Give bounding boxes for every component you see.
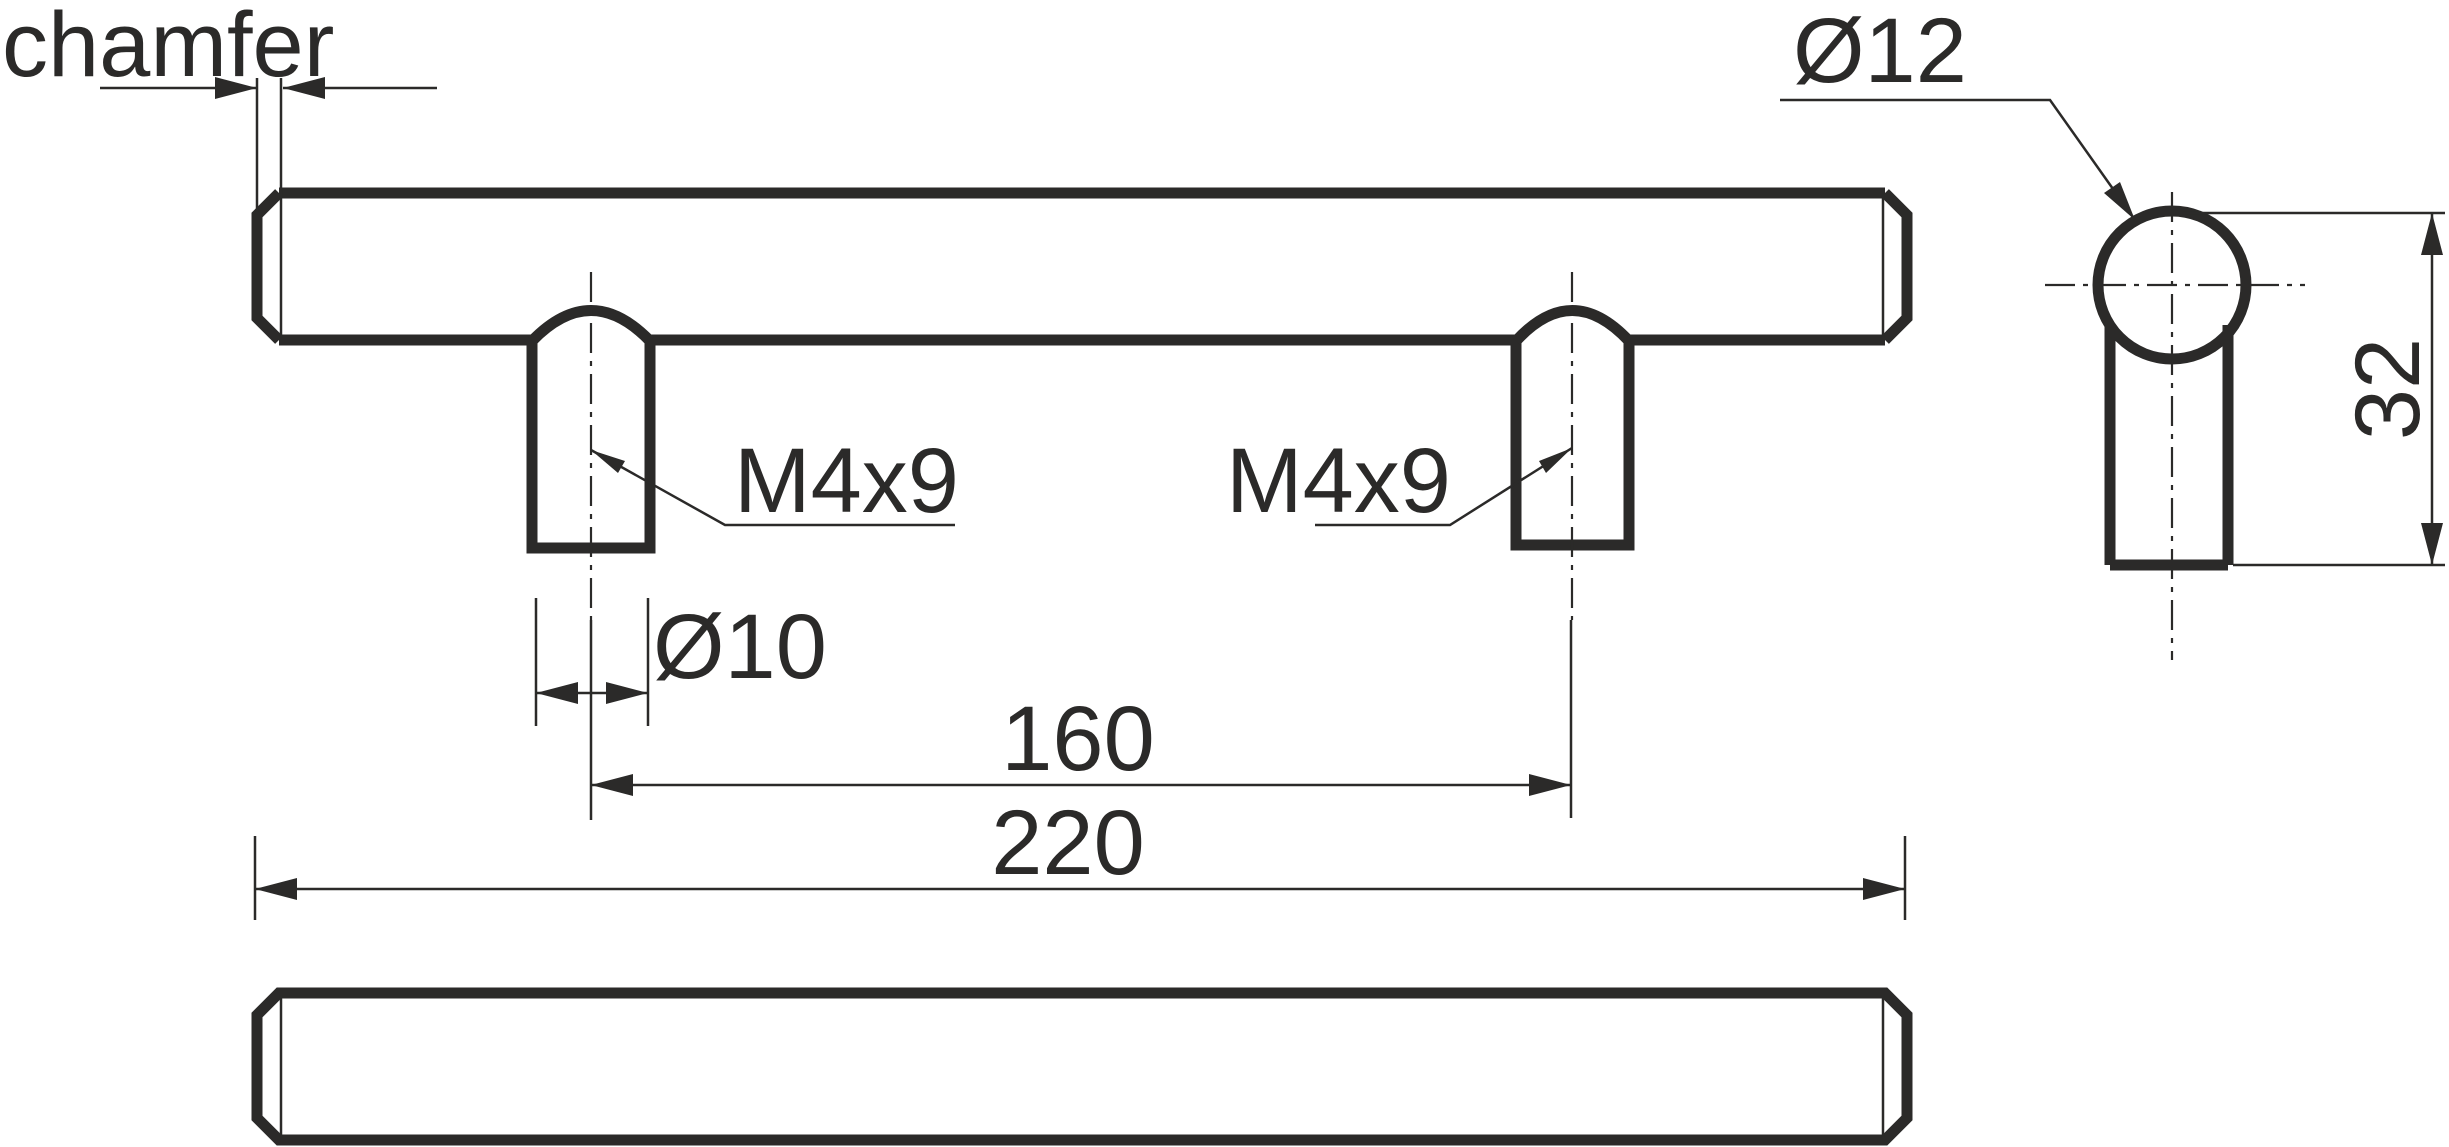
dim-160-arrow-right [1529,774,1571,796]
bar-left-chamfered-end [257,193,279,340]
dim-32-arrow-top [2421,213,2443,255]
dim-160-arrow-left [591,774,633,796]
dim-32-label: 32 [2337,338,2439,440]
dia10-dimension: Ø10 [536,596,827,726]
plan-view-bar [257,993,1907,1140]
dia10-arrow-right [606,682,648,704]
technical-drawing-canvas: chamfer Ø12 M4x9 M4x9 Ø10 160 [0,0,2449,1147]
dim-220: 220 [255,792,1905,920]
m4x9-right-label: M4x9 [1226,430,1451,532]
dim-160: 160 [591,688,1571,796]
dia12-callout: Ø12 [1780,0,2135,220]
m4x9-left-leader-arrow [591,450,625,473]
chamfer-label: chamfer [2,0,334,96]
bar-right-chamfered-end [1885,193,1907,340]
dia12-leader-line [1780,100,2135,220]
dim-160-label: 160 [1001,688,1155,790]
handle-dimension-drawing: chamfer Ø12 M4x9 M4x9 Ø10 160 [0,0,2449,1147]
plan-bar-outline [257,993,1907,1140]
dia10-arrow-left [536,682,578,704]
dim-220-arrow-left [255,878,297,900]
m4x9-left-label: M4x9 [734,430,959,532]
dim-32: 32 [2183,213,2445,565]
dia12-label: Ø12 [1793,0,1967,102]
dim-32-arrow-bottom [2421,523,2443,565]
dim-220-arrow-right [1863,878,1905,900]
front-view-bar [257,78,1907,340]
dia12-leader-arrow [2104,182,2135,220]
chamfer-dimension: chamfer [2,0,437,212]
dia10-label: Ø10 [653,596,827,698]
dim-220-label: 220 [991,792,1145,894]
m4x9-right-leader-arrow [1539,448,1572,473]
